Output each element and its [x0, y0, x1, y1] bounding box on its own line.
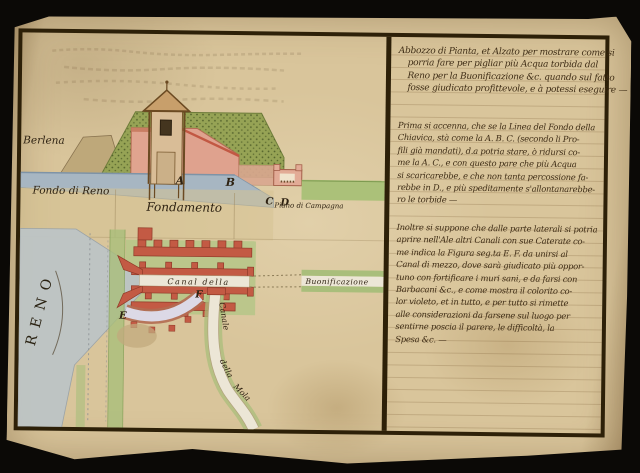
photo-background: A B C D Berlena Fondo di Reno Fondamento… — [0, 0, 640, 473]
piano-di-campagna-label: Piano di Campagna — [273, 201, 343, 210]
tower-window — [160, 120, 171, 135]
plan-elevation-drawing: A B C D Berlena Fondo di Reno Fondamento… — [18, 32, 387, 430]
point-e-label: E — [118, 311, 127, 322]
first-note-paragraph: Prima si accenna, che se la Linea del Fo… — [397, 119, 603, 208]
manuscript-line: Spesa &c. — — [395, 333, 600, 348]
foundation-joint — [234, 193, 235, 239]
bleedthrough-text — [52, 49, 303, 104]
canal-della-label: Canal della — [167, 277, 229, 287]
canal-dotted-link — [250, 274, 302, 277]
fondamento-label: Fondamento — [145, 200, 222, 215]
point-c-label: C — [265, 196, 273, 207]
canal-dotted-link — [249, 286, 301, 288]
border-frame: A B C D Berlena Fondo di Reno Fondamento… — [14, 28, 610, 437]
text-panel: Abbozzo di Pianta, et Alzato per mostrar… — [386, 37, 605, 434]
manuscript-line: ro le torbide — — [397, 193, 602, 208]
second-note-paragraph: Inoltre si suppone che dalle parte later… — [395, 221, 601, 348]
point-f-label: F — [194, 289, 203, 300]
levee-strip — [76, 365, 86, 427]
campagna-gate — [274, 164, 302, 185]
berlena-label: Berlena — [22, 134, 65, 147]
plan-group: E F Canal della Buonificazione Canale de… — [18, 226, 384, 430]
point-a-label: A — [175, 174, 185, 187]
manuscript-sheet: A B C D Berlena Fondo di Reno Fondamento… — [6, 9, 631, 468]
title-paragraph: Abbozzo di Pianta, et Alzato per mostrar… — [398, 45, 603, 97]
drawing-panel: A B C D Berlena Fondo di Reno Fondamento… — [18, 32, 387, 430]
buonificazione-label: Buonificazione — [304, 277, 368, 287]
manuscript-line: fosse giudicato profittevole, e à potess… — [407, 82, 603, 97]
right-green-field — [301, 180, 384, 201]
fondo-di-reno-label: Fondo di Reno — [31, 184, 109, 197]
elevation-group: A B C D Berlena Fondo di Reno Fondamento… — [20, 79, 386, 242]
point-b-label: B — [225, 176, 235, 189]
